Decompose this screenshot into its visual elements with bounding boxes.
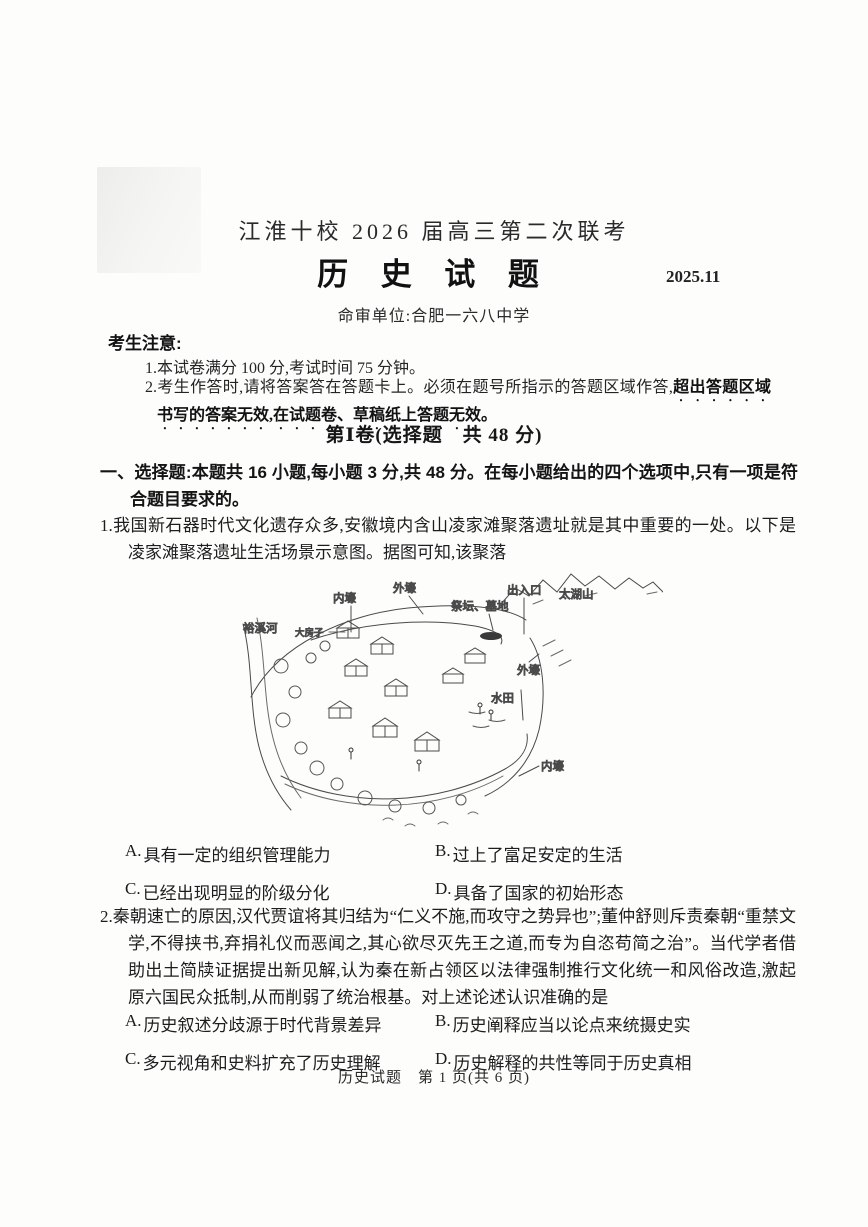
page-footer: 历史试题 第 1 页(共 6 页)	[0, 1066, 868, 1087]
map-label-paddy-field: 水田	[491, 692, 514, 705]
option-item: B.过上了富足安定的生活	[435, 841, 745, 866]
issuer-line: 命审单位:合肥一六八中学	[0, 302, 868, 326]
option-label: B.	[435, 841, 451, 866]
question-1-stem: 1.我国新石器时代文化遗存众多,安徽境内含山凌家滩聚落遗址就是其中重要的一处。以…	[100, 512, 796, 566]
notice-item-2-normal: 2.考生作答时,请将答案答在答题卡上。必须在题号所指示的答题区域作答,	[145, 379, 673, 396]
exam-series-title: 江淮十校 2026 届高三第二次联考	[0, 214, 868, 246]
option-item: D.具备了国家的初始形态	[435, 879, 745, 904]
exam-date: 2025.11	[666, 267, 720, 287]
question-2-stem: 2.秦朝速亡的原因,汉代贾谊将其归结为“仁义不施,而攻守之势异也”;董仲舒则斥责…	[100, 903, 796, 1011]
option-text: 历史阐释应当以论点来统摄史实	[453, 1011, 691, 1036]
map-label-entrance: 出入口	[507, 583, 542, 597]
option-label: D.	[435, 879, 452, 904]
option-item: C.已经出现明显的阶级分化	[125, 879, 435, 904]
section-1-title: 第Ⅰ卷(选择题 共 48 分)	[0, 420, 868, 447]
option-text: 已经出现明显的阶级分化	[143, 879, 330, 904]
map-label-inner-moat-top: 内壕	[333, 591, 356, 605]
map-label-yuxi-river: 裕溪河	[243, 621, 278, 635]
notice-item-1: 1.本试卷满分 100 分,考试时间 75 分钟。	[145, 354, 765, 378]
subject-title: 历 史 试 题	[0, 249, 868, 294]
settlement-sketch-figure: 内壕 外壕 祭坛、墓地 出入口 太湖山 裕溪河 大房子 外壕 水田 内壕	[233, 562, 663, 837]
settlement-sketch: 内壕 外壕 祭坛、墓地 出入口 太湖山 裕溪河 大房子 外壕 水田 内壕	[233, 562, 663, 837]
tree-icons	[274, 641, 466, 814]
map-label-big-house: 大房子	[295, 627, 324, 639]
option-text: 历史叙述分歧源于时代背景差异	[144, 1011, 382, 1036]
option-label: B.	[435, 1011, 451, 1036]
map-label-taihu-mountain: 太湖山	[559, 587, 594, 601]
map-label-outer-moat-right: 外壕	[517, 663, 540, 677]
option-text: 具有一定的组织管理能力	[144, 841, 331, 866]
option-label: A.	[125, 1011, 142, 1036]
option-text: 过上了富足安定的生活	[453, 841, 623, 866]
option-text: 具备了国家的初始形态	[454, 879, 624, 904]
map-label-inner-moat-bottom: 内壕	[541, 759, 564, 773]
map-label-altar-cemetery: 祭坛、墓地	[451, 600, 509, 613]
option-item: A.历史叙述分歧源于时代背景差异	[125, 1011, 435, 1036]
option-item: B.历史阐释应当以论点来统摄史实	[435, 1011, 745, 1036]
part-1-intro: 一、选择题:本题共 16 小题,每小题 3 分,共 48 分。在每小题给出的四个…	[100, 459, 798, 513]
option-item: A.具有一定的组织管理能力	[125, 841, 435, 866]
option-label: A.	[125, 841, 142, 866]
map-label-outer-moat-top: 外壕	[393, 581, 416, 595]
house-icons	[329, 621, 485, 751]
notice-title: 考生注意:	[108, 329, 182, 354]
option-label: C.	[125, 879, 141, 904]
exam-paper-page: 江淮十校 2026 届高三第二次联考 历 史 试 题 2025.11 命审单位:…	[0, 0, 868, 1227]
